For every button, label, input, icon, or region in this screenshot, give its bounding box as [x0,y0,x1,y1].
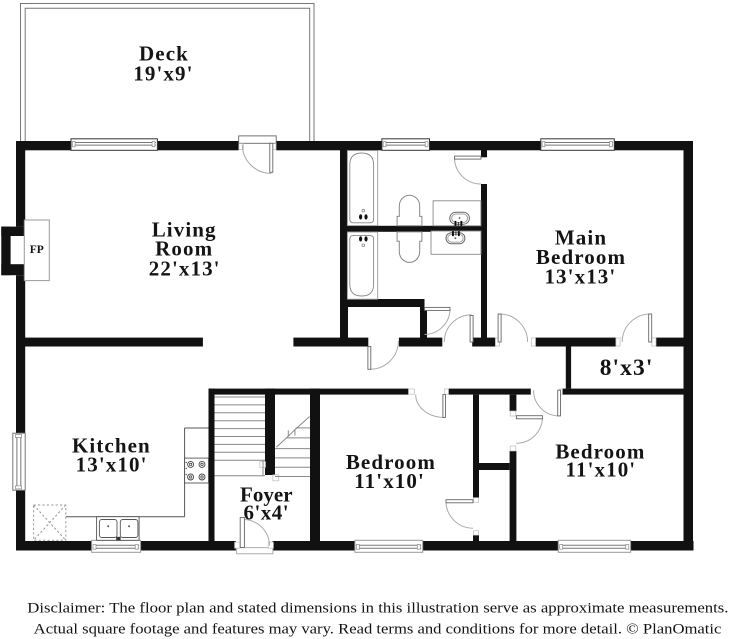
svg-text:13'x10': 13'x10' [76,453,148,477]
svg-text:11'x10': 11'x10' [566,458,637,482]
svg-text:11'x10': 11'x10' [354,469,425,493]
svg-text:6'x4': 6'x4' [243,501,289,525]
svg-text:8'x3': 8'x3' [600,355,654,381]
svg-text:13'x13': 13'x13' [544,265,616,289]
svg-text:19'x9': 19'x9' [133,61,193,85]
svg-text:Actual square footage and feat: Actual square footage and features may v… [34,621,722,637]
svg-text:Disclaimer: The floor plan and: Disclaimer: The floor plan and stated di… [27,601,728,617]
svg-text:FP: FP [30,244,44,256]
svg-text:22'x13': 22'x13' [149,257,221,281]
